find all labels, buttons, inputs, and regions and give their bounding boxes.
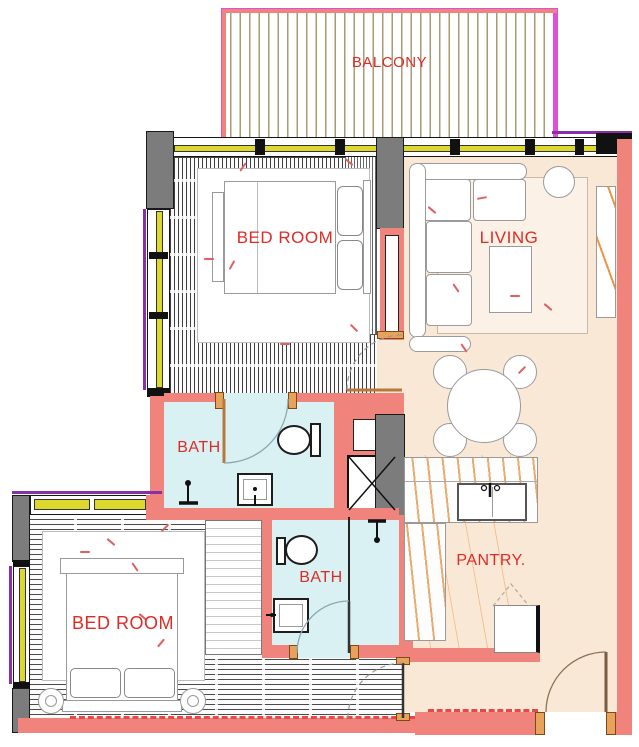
- bath-top-door-opening: [224, 393, 288, 402]
- door-jamb: [289, 645, 298, 659]
- dining-table: [447, 369, 521, 443]
- door-jamb: [215, 392, 224, 409]
- left-window-wall: [147, 209, 170, 390]
- living-label: LIVING: [458, 228, 560, 248]
- light-tick: [280, 343, 290, 345]
- window-pane: [34, 499, 90, 510]
- window-mullion: [149, 252, 168, 259]
- floor-plan: BALCONY BED ROOM LIVING BATH BATH BED RO…: [0, 0, 639, 747]
- bedroom-top-door-opening: [377, 340, 404, 397]
- bedroom-top-label: BED ROOM: [225, 228, 345, 248]
- sofa-back: [409, 163, 426, 338]
- fridge: [494, 605, 540, 653]
- nightstand: [180, 688, 206, 714]
- wall-right: [617, 139, 632, 735]
- entrance-opening: [545, 712, 606, 735]
- setback-dashed-line: [70, 716, 415, 719]
- window-frame-line: [12, 491, 162, 494]
- balcony-decking-texture: [222, 9, 557, 139]
- bed-foot-duvet: [60, 558, 184, 574]
- toilet-tank: [310, 423, 321, 457]
- toilet-bowl: [285, 535, 318, 565]
- tv-console: [596, 186, 616, 318]
- door-jamb: [288, 392, 297, 409]
- window-mullion: [450, 139, 460, 155]
- bedroom-bottom-wardrobe: [205, 520, 262, 655]
- bedroom-bottom-label: BED ROOM: [58, 613, 188, 634]
- wall: [334, 393, 347, 520]
- door-jamb: [396, 657, 410, 665]
- light-tick: [80, 551, 90, 553]
- door-jamb: [377, 331, 404, 339]
- wall: [146, 495, 164, 520]
- window-glass-line: [19, 568, 26, 682]
- sink: [273, 598, 309, 633]
- coffee-table: [489, 246, 532, 313]
- window-mullion: [255, 139, 265, 155]
- sofa-cushion: [473, 179, 526, 221]
- setback-dashed-line: [428, 709, 538, 712]
- light-tick: [204, 258, 214, 260]
- window-frame-line: [143, 209, 146, 390]
- door-jamb: [606, 712, 616, 735]
- headboard: [62, 700, 182, 712]
- pillow: [70, 668, 121, 698]
- window-glass-line: [156, 211, 163, 388]
- headboard: [363, 180, 371, 294]
- window-mullion: [335, 139, 345, 155]
- bath-bottom-label: BATH: [290, 569, 352, 587]
- sink: [237, 473, 273, 506]
- sofa-cushion: [426, 274, 472, 326]
- bed-bench: [212, 192, 224, 282]
- door-jamb: [535, 712, 545, 735]
- bath-top-label: BATH: [168, 439, 230, 457]
- kitchen-counter: [404, 523, 446, 641]
- light-tick: [510, 295, 520, 297]
- bedroom-bottom-left-window: [13, 566, 30, 684]
- toilet-bowl: [277, 425, 311, 455]
- pillow: [124, 668, 175, 698]
- balcony-deck: [221, 8, 558, 139]
- column: [376, 137, 404, 229]
- pantry-label: PANTRY.: [444, 552, 538, 570]
- door-jamb: [396, 713, 410, 721]
- nightstand: [38, 688, 64, 714]
- side-table: [543, 166, 575, 198]
- column: [12, 495, 30, 562]
- wall-duct-slot: [385, 235, 399, 333]
- wall: [262, 515, 272, 658]
- window-frame-line: [9, 566, 12, 684]
- column: [375, 414, 405, 520]
- window-mullion: [149, 312, 168, 319]
- wall-bottom-bedroom: [18, 718, 415, 733]
- sofa-back: [413, 163, 527, 180]
- window-mullion: [525, 139, 535, 155]
- door-jamb: [350, 645, 359, 659]
- balcony-label: BALCONY: [221, 54, 558, 71]
- column: [146, 131, 174, 209]
- wall: [150, 508, 399, 520]
- kitchen-sink: [457, 483, 527, 521]
- bath-bottom-door-opening: [298, 645, 350, 658]
- window-pane: [94, 499, 146, 510]
- window-mullion: [575, 139, 584, 155]
